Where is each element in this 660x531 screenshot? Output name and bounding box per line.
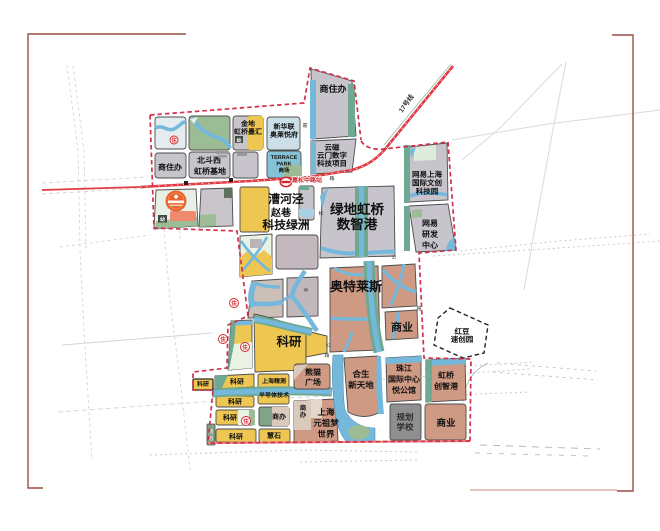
svg-text:幼: 幼 xyxy=(160,216,165,223)
svg-text:元祖梦: 元祖梦 xyxy=(313,418,339,428)
svg-text:科研: 科研 xyxy=(230,377,244,386)
svg-text:金地: 金地 xyxy=(240,119,255,128)
svg-text:商办: 商办 xyxy=(272,412,286,421)
svg-text:规划: 规划 xyxy=(396,412,413,422)
svg-text:半导体技术: 半导体技术 xyxy=(259,391,289,399)
svg-text:研发: 研发 xyxy=(422,230,439,239)
svg-text:科研: 科研 xyxy=(229,432,243,441)
svg-text:珠江: 珠江 xyxy=(396,364,412,373)
svg-text:住: 住 xyxy=(242,344,248,351)
svg-text:新天地: 新天地 xyxy=(348,380,374,390)
svg-text:虹桥墨汇: 虹桥墨汇 xyxy=(234,127,262,136)
svg-text:公: 公 xyxy=(391,254,396,261)
svg-text:商住办: 商住办 xyxy=(158,163,182,172)
svg-text:住: 住 xyxy=(220,336,226,343)
svg-text:TERRACE: TERRACE xyxy=(271,155,298,161)
svg-text:熊猫: 熊猫 xyxy=(305,368,321,377)
svg-text:慧石: 慧石 xyxy=(267,431,281,440)
svg-text:广场: 广场 xyxy=(305,378,321,387)
svg-text:住: 住 xyxy=(171,137,177,144)
svg-text:漕河泾: 漕河泾 xyxy=(268,192,304,206)
svg-text:嘉松中路站: 嘉松中路站 xyxy=(291,176,322,184)
svg-text:虹桥基地: 虹桥基地 xyxy=(194,167,226,176)
svg-text:合生: 合生 xyxy=(352,369,370,379)
svg-text:北斗西: 北斗西 xyxy=(197,156,221,165)
svg-text:上海: 上海 xyxy=(317,407,335,417)
svg-text:数智港: 数智港 xyxy=(337,217,378,232)
svg-text:悦公馆: 悦公馆 xyxy=(392,386,416,395)
svg-text:科研: 科研 xyxy=(197,380,209,388)
svg-text:PARK: PARK xyxy=(276,162,291,168)
svg-text:新华联: 新华联 xyxy=(274,122,296,131)
svg-text:上海精测: 上海精测 xyxy=(262,377,286,385)
svg-text:松: 松 xyxy=(318,210,323,217)
svg-text:奥莱悦府: 奥莱悦府 xyxy=(269,130,298,139)
svg-text:住: 住 xyxy=(243,418,249,425)
svg-text:商场: 商场 xyxy=(278,167,290,174)
svg-text:世界: 世界 xyxy=(317,429,335,439)
svg-text:科研: 科研 xyxy=(228,397,242,406)
svg-text:绿地虹桥: 绿地虹桥 xyxy=(330,202,384,217)
svg-text:公: 公 xyxy=(325,342,330,349)
svg-text:商住办: 商住办 xyxy=(319,84,346,94)
svg-text:路: 路 xyxy=(324,352,329,359)
svg-text:速创园: 速创园 xyxy=(451,335,474,344)
svg-text:中: 中 xyxy=(303,287,308,294)
svg-text:虹桥: 虹桥 xyxy=(438,371,455,380)
svg-text:国际中心: 国际中心 xyxy=(388,375,420,384)
svg-text:科技项目: 科技项目 xyxy=(316,159,347,168)
svg-text:路: 路 xyxy=(416,305,421,312)
svg-text:办: 办 xyxy=(300,411,307,419)
svg-text:科技绿洲: 科技绿洲 xyxy=(262,218,309,232)
svg-text:嘉: 嘉 xyxy=(302,122,307,129)
svg-text:路: 路 xyxy=(329,175,334,182)
svg-text:中心: 中心 xyxy=(422,241,438,250)
svg-text:奥特莱斯: 奥特莱斯 xyxy=(330,279,382,294)
svg-text:幼: 幼 xyxy=(236,137,241,144)
svg-text:网易: 网易 xyxy=(422,219,438,228)
svg-text:商: 商 xyxy=(300,404,307,412)
svg-text:商业: 商业 xyxy=(436,417,456,429)
svg-text:创智港: 创智港 xyxy=(433,382,459,391)
svg-text:科技园: 科技园 xyxy=(415,187,439,196)
svg-text:住: 住 xyxy=(231,300,237,307)
svg-text:科研: 科研 xyxy=(276,335,302,349)
svg-text:商业: 商业 xyxy=(391,321,413,334)
svg-text:科研: 科研 xyxy=(223,413,237,422)
svg-text:学校: 学校 xyxy=(396,422,414,432)
